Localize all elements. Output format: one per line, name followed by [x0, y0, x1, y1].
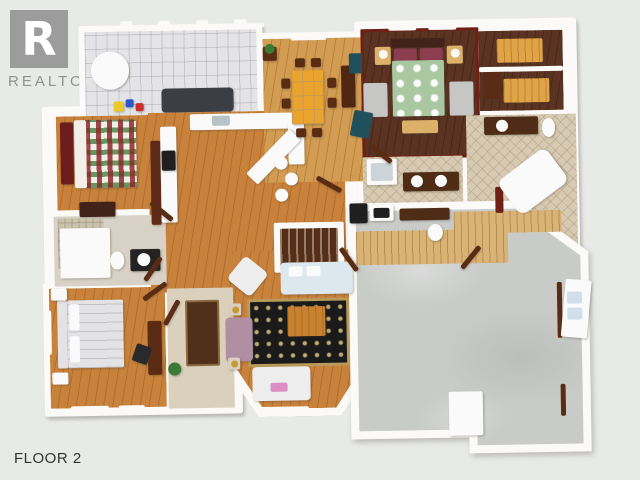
window: [71, 406, 109, 413]
fireplace-unit: [349, 203, 367, 223]
dining-chair: [312, 128, 322, 137]
dining-chair: [281, 78, 290, 88]
stove: [161, 151, 175, 171]
bed2-pillow: [70, 336, 80, 362]
master-duvet: [392, 60, 445, 117]
sofa-pillow: [306, 266, 320, 276]
area-rug: [449, 81, 474, 115]
window: [119, 405, 145, 411]
kids-bed-pillows: [74, 120, 87, 188]
toy: [136, 103, 144, 111]
dining-chair: [295, 58, 305, 67]
dining-chair: [311, 58, 321, 67]
potted-plant: [168, 362, 181, 375]
dining-chair: [328, 98, 337, 108]
nightstand: [52, 372, 68, 384]
lamp: [451, 49, 460, 58]
teal-armchair: [349, 53, 362, 73]
deck-rail-post: [120, 21, 132, 29]
bed2-pillow: [69, 304, 79, 330]
bath-counter: [399, 208, 449, 221]
coffee-table: [287, 306, 326, 337]
deck-rail-post: [158, 21, 170, 29]
toilet: [110, 251, 124, 269]
dining-chair: [296, 128, 306, 137]
kids-bed-headboard: [60, 122, 74, 184]
toy: [114, 101, 124, 111]
deck-rail-post: [196, 20, 208, 28]
deck-rail-post: [234, 19, 246, 27]
kitchen-counter-top: [190, 112, 302, 130]
toilet: [542, 118, 555, 137]
gold-lamp: [232, 306, 239, 313]
mauve-armchair: [225, 317, 253, 361]
master-pillow: [394, 48, 417, 60]
shower-glass: [371, 163, 393, 181]
closet-shelving: [497, 38, 543, 63]
window: [388, 24, 416, 30]
floorplan-render: R REALTOR®: [0, 0, 640, 480]
closet-shelving: [503, 78, 549, 103]
floor-label: FLOOR 2: [14, 450, 82, 467]
floorplan: [0, 0, 640, 480]
kids-dresser: [79, 202, 115, 218]
kitchen-sink: [212, 116, 230, 126]
panel-screen: [373, 208, 389, 218]
sofa-pillow: [288, 266, 302, 276]
pink-throw: [270, 383, 287, 392]
bathtub: [60, 228, 111, 279]
bed-bench: [402, 120, 438, 134]
vanity-wood: [484, 116, 538, 135]
window: [45, 311, 52, 355]
toy: [126, 99, 134, 107]
window: [261, 406, 309, 413]
door-glass-pane: [567, 307, 582, 319]
closet-dresser: [483, 71, 501, 99]
nightstand: [51, 288, 67, 300]
window: [290, 34, 326, 41]
plant: [265, 44, 275, 54]
dining-table: [291, 70, 324, 125]
window: [428, 24, 456, 30]
dining-chair: [282, 98, 291, 108]
master-pillow: [420, 48, 443, 60]
door-glass-pane: [567, 291, 582, 303]
master-headboard: [390, 38, 444, 48]
dining-chair: [327, 78, 336, 88]
outdoor-sofa: [161, 87, 233, 112]
runner-rug: [185, 300, 220, 367]
support-column: [449, 391, 484, 436]
door-jamb: [561, 384, 567, 416]
window: [42, 133, 49, 169]
